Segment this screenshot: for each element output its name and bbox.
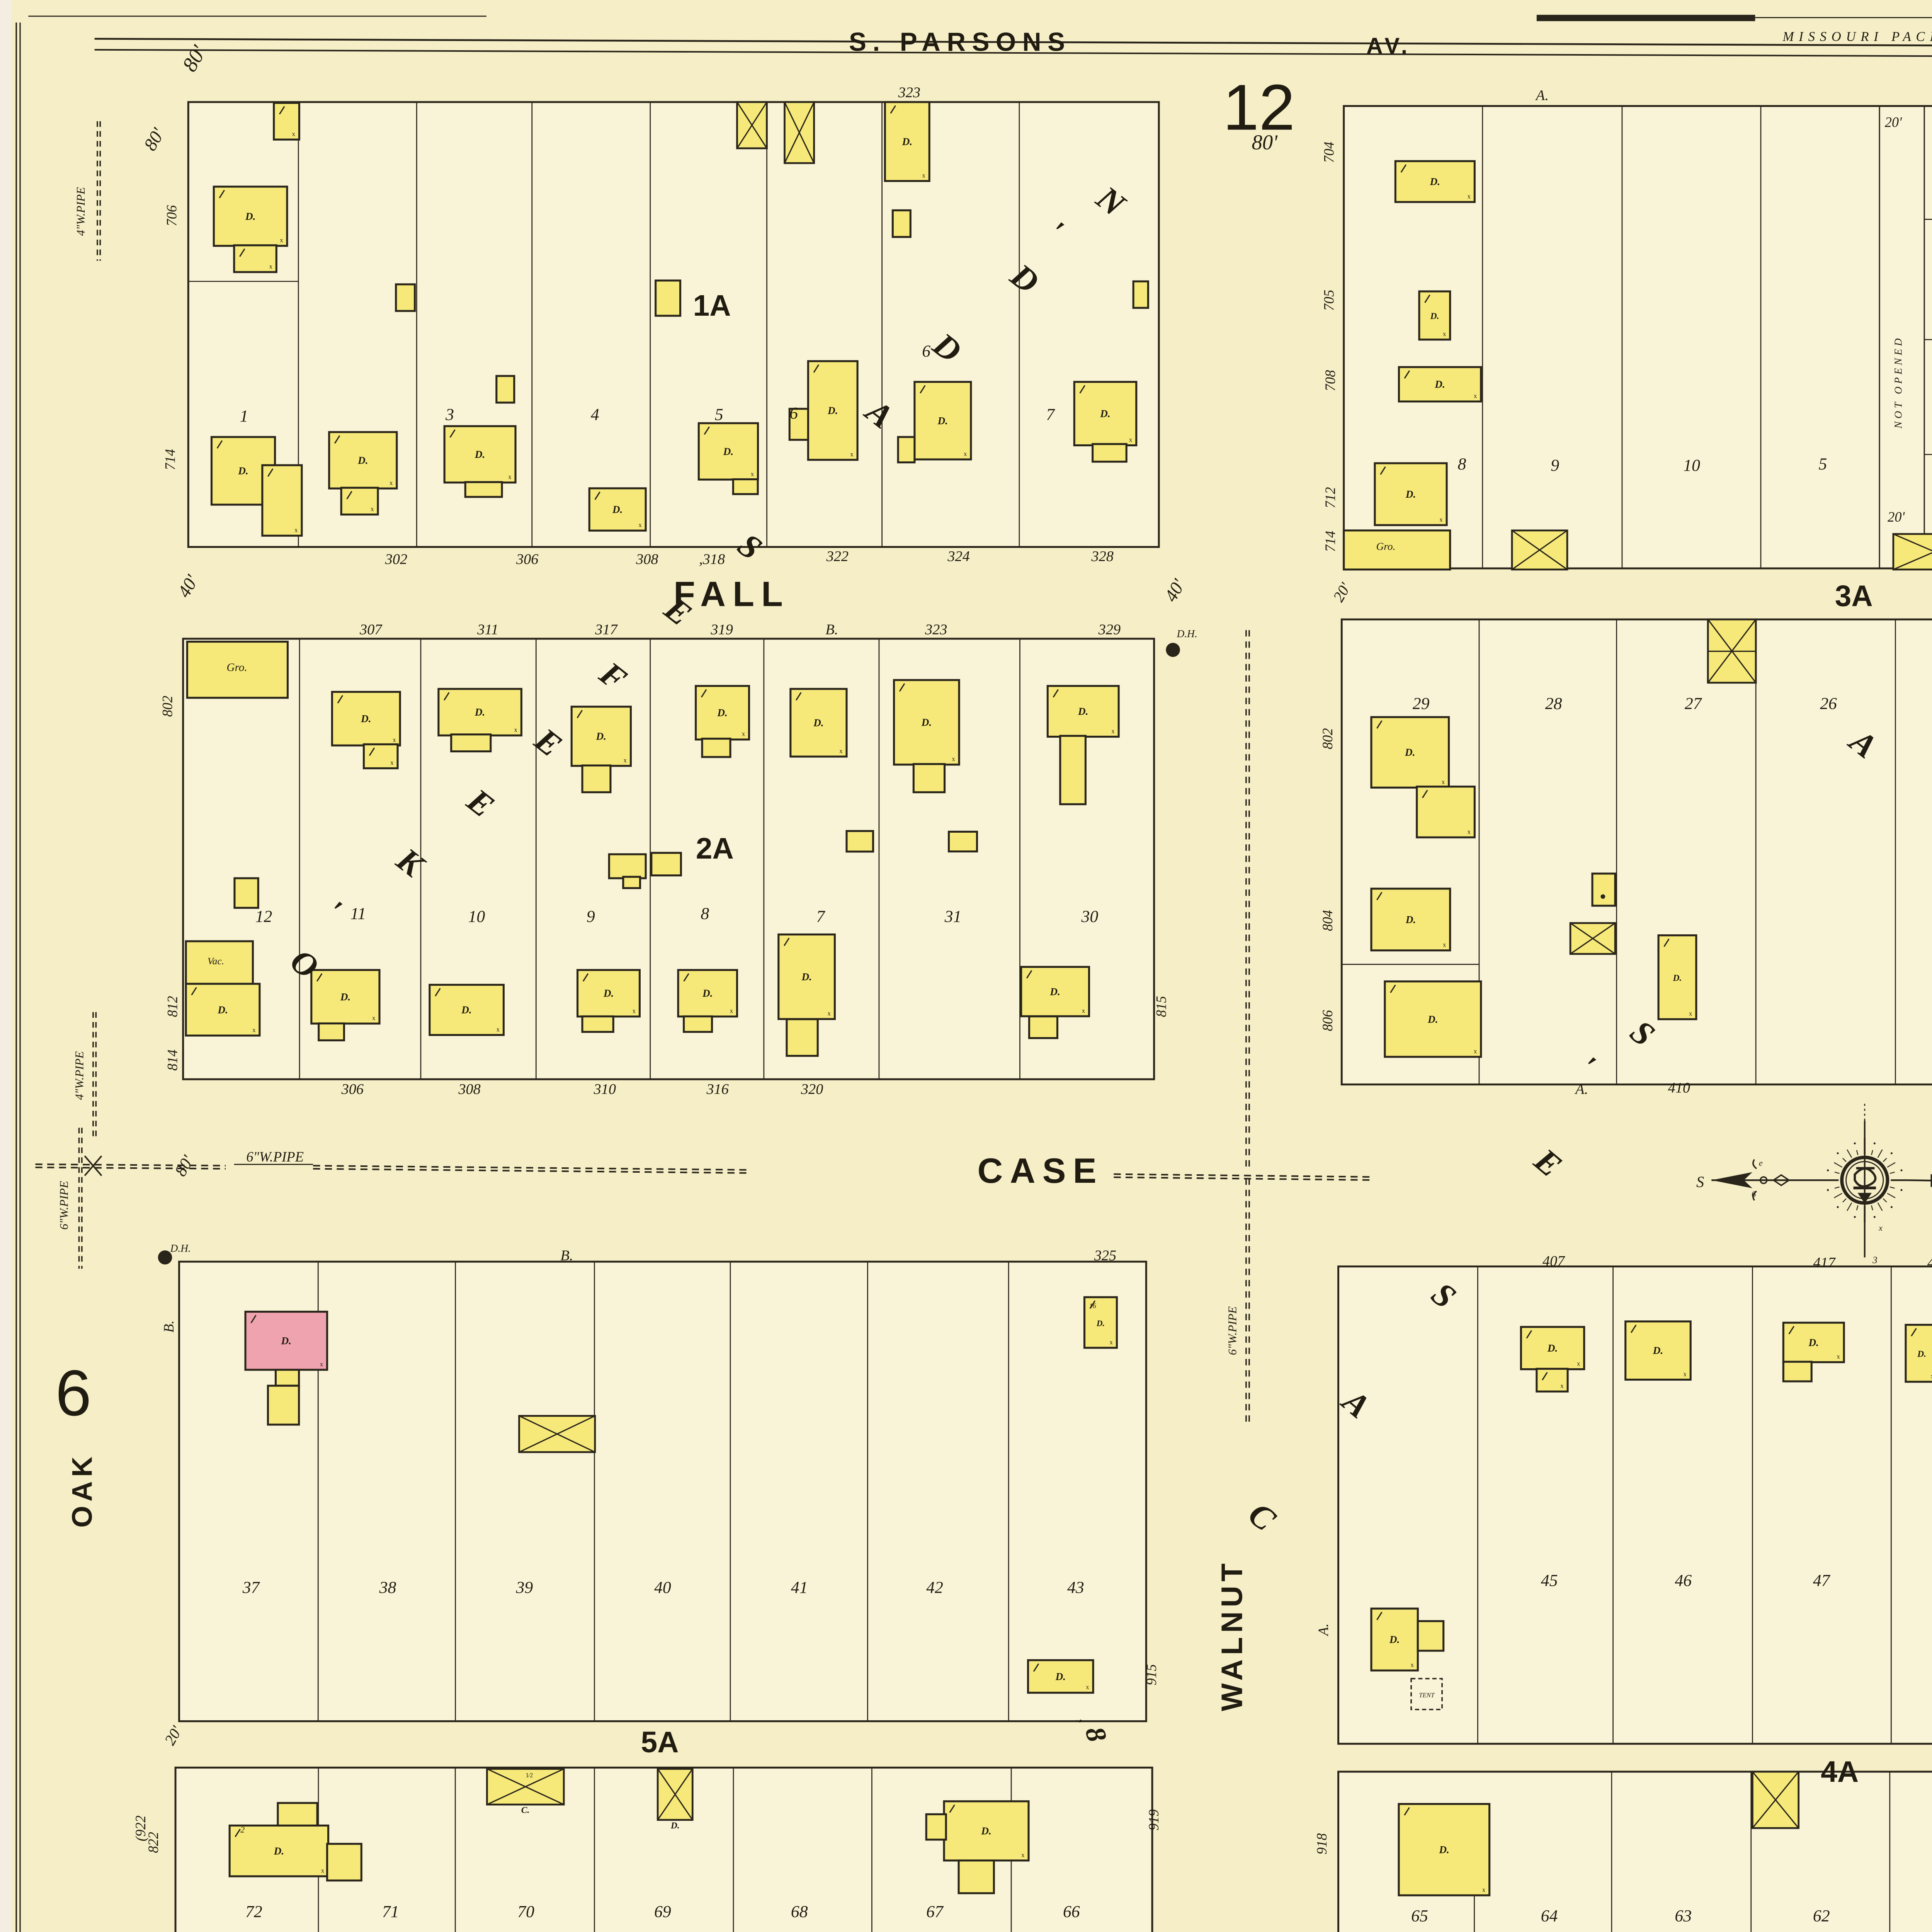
svg-text:x: x <box>269 263 272 270</box>
svg-text:D.: D. <box>723 446 734 457</box>
svg-text:915: 915 <box>1143 1664 1159 1685</box>
svg-text:308: 308 <box>458 1081 480 1097</box>
svg-text:D.: D. <box>1429 176 1440 187</box>
svg-text:D.: D. <box>612 504 623 515</box>
svg-text:1⁄2: 1⁄2 <box>526 1772 533 1779</box>
svg-text:D.: D. <box>827 405 838 416</box>
svg-text:x: x <box>730 1007 733 1015</box>
svg-text:x: x <box>624 757 627 764</box>
svg-text:29: 29 <box>1413 694 1430 713</box>
svg-text:D.: D. <box>461 1004 472 1016</box>
svg-text:322: 322 <box>826 548 849 565</box>
svg-text:69: 69 <box>654 1903 671 1921</box>
svg-text:AV.: AV. <box>1366 34 1411 59</box>
svg-text:x: x <box>294 526 298 534</box>
svg-text:A.: A. <box>1535 87 1549 104</box>
svg-text:Vac.: Vac. <box>207 955 224 966</box>
svg-text:64: 64 <box>1541 1907 1558 1925</box>
svg-text:26: 26 <box>1820 694 1837 713</box>
svg-text:714: 714 <box>162 449 178 470</box>
svg-text:D.: D. <box>1430 311 1439 321</box>
svg-text:D.: D. <box>813 717 824 729</box>
svg-text:37: 37 <box>242 1578 260 1597</box>
svg-text:323: 323 <box>925 622 947 638</box>
svg-text:802: 802 <box>159 696 175 717</box>
svg-text:10: 10 <box>1683 456 1700 475</box>
svg-text:D.: D. <box>474 706 485 718</box>
svg-text:3: 3 <box>1872 1254 1878 1265</box>
svg-text:3: 3 <box>445 405 454 424</box>
svg-text:2: 2 <box>240 1825 245 1835</box>
svg-text:328: 328 <box>1091 548 1113 565</box>
svg-text:40: 40 <box>654 1578 671 1597</box>
svg-text:323: 323 <box>898 85 920 101</box>
svg-text:x: x <box>390 759 393 766</box>
svg-text:x: x <box>292 130 295 138</box>
svg-text:46: 46 <box>1675 1571 1692 1590</box>
svg-text:D.: D. <box>1055 1671 1066 1682</box>
svg-text:306: 306 <box>516 551 538 567</box>
svg-text:822: 822 <box>145 1832 161 1853</box>
svg-text:311: 311 <box>477 622 498 638</box>
svg-text:65: 65 <box>1411 1907 1428 1925</box>
svg-text:802: 802 <box>1320 728 1335 749</box>
svg-text:27: 27 <box>1685 694 1702 713</box>
svg-text:421: 421 <box>1927 1255 1932 1271</box>
svg-text:3A: 3A <box>1835 580 1873 613</box>
svg-text:302: 302 <box>385 551 407 567</box>
svg-text:x: x <box>1482 1886 1485 1893</box>
svg-text:45: 45 <box>1541 1571 1558 1590</box>
svg-text:x: x <box>1474 1048 1477 1055</box>
svg-text:4: 4 <box>591 405 599 424</box>
svg-text:x: x <box>751 470 754 478</box>
svg-text:714: 714 <box>1322 531 1338 552</box>
svg-text:WALNUT: WALNUT <box>1216 1559 1248 1711</box>
svg-text:D.: D. <box>981 1825 992 1837</box>
svg-text:D.: D. <box>902 136 913 147</box>
svg-text:62: 62 <box>1813 1907 1830 1925</box>
svg-text:x: x <box>1411 1661 1414 1668</box>
svg-text:x: x <box>1439 516 1442 523</box>
svg-text:407: 407 <box>1543 1253 1565 1269</box>
svg-text:x: x <box>1577 1360 1580 1367</box>
svg-text:D.: D. <box>717 707 728 719</box>
svg-text:918: 918 <box>1314 1833 1330 1855</box>
svg-text:4"W.PIPE: 4"W.PIPE <box>74 187 87 236</box>
svg-text:319: 319 <box>710 622 733 638</box>
svg-text:9: 9 <box>1551 456 1559 475</box>
svg-text:D.: D. <box>1808 1337 1819 1348</box>
svg-text:804: 804 <box>1320 910 1335 931</box>
svg-text:x: x <box>922 172 925 179</box>
svg-text:31: 31 <box>944 907 962 926</box>
svg-text:x: x <box>280 236 283 244</box>
svg-text:712: 712 <box>1322 487 1338 508</box>
svg-text:Gro.: Gro. <box>227 662 247 674</box>
svg-text:39: 39 <box>516 1578 533 1597</box>
svg-text:D.: D. <box>245 211 256 222</box>
svg-text:D.: D. <box>1917 1349 1926 1359</box>
svg-text:D.: D. <box>1653 1345 1663 1356</box>
svg-text:x: x <box>508 473 511 481</box>
svg-text:38: 38 <box>379 1578 396 1597</box>
svg-text:6"W.PIPE: 6"W.PIPE <box>246 1149 304 1165</box>
svg-text:D.H.: D.H. <box>170 1243 191 1254</box>
svg-text:D.: D. <box>702 988 713 999</box>
svg-text:708: 708 <box>1322 370 1338 391</box>
svg-text:x: x <box>1110 1338 1113 1346</box>
svg-text:x: x <box>393 736 396 743</box>
svg-text:x: x <box>1111 727 1114 735</box>
svg-text:43: 43 <box>1067 1578 1084 1597</box>
svg-text:x: x <box>1086 1684 1089 1691</box>
svg-text:705: 705 <box>1321 290 1337 311</box>
svg-text:x: x <box>1689 1010 1692 1017</box>
svg-text:B.: B. <box>161 1320 177 1332</box>
svg-text:x: x <box>1082 1007 1085 1014</box>
svg-text:7: 7 <box>816 907 826 926</box>
svg-text:x: x <box>1129 436 1132 443</box>
svg-text:e: e <box>1759 1158 1763 1168</box>
svg-text:D.: D. <box>1096 1319 1105 1328</box>
svg-text:8: 8 <box>1458 455 1466 473</box>
svg-text:D.: D. <box>340 991 351 1003</box>
svg-text:80': 80' <box>1252 131 1278 154</box>
svg-text:x: x <box>1442 778 1445 786</box>
svg-text:D.: D. <box>1672 973 1682 983</box>
svg-text:x: x <box>1684 1370 1687 1378</box>
svg-text:317: 317 <box>595 622 618 638</box>
svg-text:806: 806 <box>1320 1010 1335 1031</box>
svg-text:D.: D. <box>238 465 248 477</box>
svg-text:1: 1 <box>240 407 248 425</box>
svg-text:410: 410 <box>1668 1080 1690 1096</box>
svg-text:D.: D. <box>596 731 607 742</box>
svg-text:x: x <box>1878 1223 1883 1233</box>
svg-text:41: 41 <box>791 1578 808 1597</box>
svg-text:C.: C. <box>521 1805 530 1815</box>
svg-text:OAK: OAK <box>66 1452 98 1528</box>
svg-text:6"W.PIPE: 6"W.PIPE <box>57 1181 70 1230</box>
svg-text:x: x <box>1560 1382 1563 1389</box>
svg-text:47: 47 <box>1813 1571 1831 1590</box>
svg-text:x: x <box>1443 941 1446 949</box>
svg-text:D.: D. <box>1078 706 1088 717</box>
svg-text:66: 66 <box>1063 1903 1080 1921</box>
svg-text:919: 919 <box>1146 1810 1162 1831</box>
svg-text:70: 70 <box>517 1903 534 1921</box>
svg-text:706: 706 <box>163 205 179 226</box>
svg-text:D.H.: D.H. <box>1176 628 1197 639</box>
svg-text:2A: 2A <box>696 832 734 865</box>
svg-text:x: x <box>1443 330 1446 338</box>
svg-text:B.: B. <box>825 622 838 638</box>
svg-text:D.: D. <box>1049 986 1060 997</box>
svg-text:D.: D. <box>474 449 485 460</box>
svg-text:D.: D. <box>281 1335 292 1347</box>
svg-text:D.: D. <box>1389 1634 1400 1645</box>
svg-text:x: x <box>252 1026 255 1034</box>
svg-text:5A: 5A <box>641 1726 679 1759</box>
svg-text:A.: A. <box>1574 1081 1588 1097</box>
svg-text:D.: D. <box>1547 1342 1558 1354</box>
svg-text:x: x <box>371 505 374 512</box>
svg-text:x: x <box>638 521 641 529</box>
svg-text:9: 9 <box>587 907 595 926</box>
svg-text:812: 812 <box>164 996 180 1017</box>
svg-text:6: 6 <box>1752 1189 1756 1199</box>
svg-text:A.: A. <box>1315 1624 1331 1636</box>
svg-text:D.: D. <box>603 988 614 999</box>
svg-text:Gro.: Gro. <box>1376 541 1396 552</box>
svg-text:704: 704 <box>1321 142 1337 163</box>
svg-text:x: x <box>1837 1353 1840 1360</box>
svg-text:329: 329 <box>1098 622 1121 638</box>
svg-text:x: x <box>372 1014 375 1022</box>
svg-text:5: 5 <box>1818 455 1827 473</box>
svg-text:10: 10 <box>468 907 485 926</box>
svg-text:x: x <box>839 747 842 755</box>
svg-text:x: x <box>964 450 967 457</box>
svg-text:S: S <box>1696 1173 1704 1190</box>
svg-text:x: x <box>321 1867 324 1874</box>
svg-text:x: x <box>497 1026 500 1033</box>
svg-text:x: x <box>1468 193 1471 200</box>
svg-text:5: 5 <box>715 405 723 424</box>
svg-text:324: 324 <box>947 548 969 565</box>
svg-text:x: x <box>389 479 393 486</box>
svg-text:308: 308 <box>636 551 658 567</box>
svg-text:8: 8 <box>701 905 709 923</box>
svg-text:x: x <box>320 1361 323 1368</box>
svg-text:325: 325 <box>1094 1248 1116 1264</box>
svg-text:x: x <box>742 730 745 738</box>
svg-text:72: 72 <box>245 1903 262 1921</box>
svg-text:x: x <box>952 755 955 763</box>
svg-text:67: 67 <box>926 1903 944 1921</box>
svg-text:30: 30 <box>1081 907 1098 926</box>
svg-text:D.: D. <box>1100 408 1111 420</box>
svg-text:16: 16 <box>1089 1302 1097 1310</box>
svg-text:D.: D. <box>670 1821 680 1831</box>
svg-text:x: x <box>1474 392 1477 400</box>
svg-text:6: 6 <box>55 1357 91 1429</box>
svg-text:417: 417 <box>1813 1255 1836 1271</box>
svg-text:307: 307 <box>359 622 383 638</box>
svg-text:6: 6 <box>789 404 798 423</box>
svg-text:6: 6 <box>922 342 930 361</box>
svg-text:x: x <box>850 451 853 458</box>
svg-text:D.: D. <box>1434 379 1445 390</box>
svg-text:28: 28 <box>1545 694 1562 713</box>
svg-text:63: 63 <box>1675 1907 1692 1925</box>
svg-text:D.: D. <box>937 415 948 427</box>
svg-text:D.: D. <box>1405 914 1416 925</box>
svg-text:CASE: CASE <box>977 1151 1103 1190</box>
svg-text:D.: D. <box>274 1845 284 1857</box>
svg-text:11: 11 <box>350 905 366 923</box>
svg-text:TENT: TENT <box>1419 1691 1435 1699</box>
svg-text:MISSOURI PACIFIC R. R.: MISSOURI PACIFIC R. R. <box>1782 29 1932 44</box>
svg-text:20': 20' <box>1885 114 1902 130</box>
svg-text:D.: D. <box>217 1004 228 1015</box>
svg-text:20': 20' <box>1888 509 1905 525</box>
svg-text:x: x <box>828 1010 831 1017</box>
svg-text:4A: 4A <box>1821 1755 1859 1788</box>
svg-text:D.: D. <box>361 713 371 724</box>
svg-text:68: 68 <box>791 1903 808 1921</box>
svg-text:71: 71 <box>382 1903 399 1921</box>
svg-text:D.: D. <box>801 971 812 983</box>
svg-text:,318: ,318 <box>699 551 725 567</box>
svg-text:D.: D. <box>357 454 368 466</box>
svg-text:D.: D. <box>1439 1844 1449 1855</box>
svg-text:12: 12 <box>255 907 272 926</box>
svg-text:815: 815 <box>1153 996 1169 1017</box>
svg-text:D.: D. <box>1405 488 1416 500</box>
svg-text:306: 306 <box>341 1081 364 1097</box>
svg-text:7: 7 <box>1046 405 1055 424</box>
svg-text:NOT OPENED: NOT OPENED <box>1893 335 1904 429</box>
svg-text:310: 310 <box>594 1081 616 1097</box>
svg-text:6"W.PIPE: 6"W.PIPE <box>1226 1306 1239 1355</box>
svg-text:D.: D. <box>1405 747 1415 758</box>
svg-text:x: x <box>633 1007 636 1015</box>
svg-text:4"W.PIPE: 4"W.PIPE <box>73 1051 86 1100</box>
svg-text:D.: D. <box>921 716 932 728</box>
svg-text:D.: D. <box>1427 1014 1438 1025</box>
svg-text:x: x <box>1021 1851 1024 1859</box>
svg-text:320: 320 <box>801 1081 823 1097</box>
svg-text:S. PARSONS: S. PARSONS <box>849 27 1071 56</box>
svg-text:x: x <box>514 726 517 733</box>
svg-text:42: 42 <box>926 1578 943 1597</box>
svg-text:x: x <box>1468 828 1471 835</box>
svg-text:1A: 1A <box>693 289 731 322</box>
svg-text:814: 814 <box>164 1049 180 1071</box>
svg-text:B.: B. <box>560 1248 573 1264</box>
svg-text:316: 316 <box>706 1081 728 1097</box>
